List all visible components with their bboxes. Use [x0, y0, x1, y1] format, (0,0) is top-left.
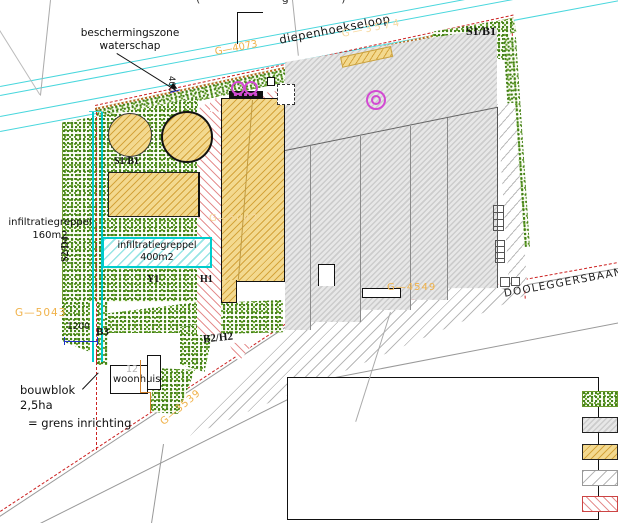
bouwblok-label: bouwblok 2,5ha = grens inrichting: [20, 383, 131, 431]
dim-1200-label: 1200: [67, 322, 90, 332]
dim-1200-tick-left: [64, 337, 65, 345]
small-white-square-symbol: [267, 77, 275, 86]
legend-swatch-bestaande-verharding: [582, 470, 618, 486]
legend-box: Erfbeplanting bestaande bebouwing nieuwe…: [287, 377, 599, 520]
planting-patch-bottom-center: [215, 300, 283, 334]
magenta-circle-1: [231, 81, 245, 95]
new-building-silo-2: [161, 111, 213, 163]
parcel-code-g5042: G—5042: [209, 213, 258, 224]
new-building-left-rect: [108, 172, 200, 217]
dim-1200-tick-right: [97, 337, 98, 345]
infiltration-box-label-1: infiltratiegreppel: [104, 240, 210, 252]
door-box-symbol: [318, 264, 335, 286]
zone-code-s1b1-top: S1/B1: [466, 24, 496, 39]
infiltration-box-400: infiltratiegreppel 400m2: [102, 237, 212, 268]
zone-code-b3: B3: [96, 326, 109, 338]
dashed-square-symbol: [277, 84, 295, 105]
stream-leader-line: [292, 0, 299, 56]
road-fork-line: [151, 444, 164, 523]
legend-swatch-nieuwe-verharding: [582, 496, 618, 512]
top-bracket-vertical: [237, 12, 238, 44]
magenta-target-inner: [371, 95, 381, 105]
infiltration-left-label-line2: 160m2: [2, 229, 98, 242]
road-square-symbol-1: [500, 277, 510, 287]
bouwblok-label-line1: bouwblok: [20, 383, 131, 398]
new-building-main-hall: [221, 98, 285, 282]
parcel-code-g5043: G—5043: [15, 307, 66, 319]
infiltration-left-label: infiltratiegreppel 160m2: [2, 216, 98, 242]
new-building-main-hall-notch: [221, 280, 237, 303]
site-plan: ( ˙ ˙ g ˙ ) infil: [0, 0, 618, 523]
ladder-symbol-2: [495, 240, 505, 263]
parcel-line-topleft: [40, 0, 51, 96]
trench-top-cap: [89, 111, 102, 112]
ladder-symbol-1: [493, 205, 504, 231]
parcel-orange-line-1: [140, 360, 141, 392]
top-bracket-horizontal: [237, 12, 263, 13]
building-division-2: [360, 136, 361, 322]
infiltration-left-label-line1: infiltratiegreppel: [2, 216, 98, 229]
magenta-circle-2: [244, 81, 258, 95]
infiltration-box-label-2: 400m2: [104, 252, 210, 263]
parcel-code-g4073: G—4073: [214, 39, 259, 58]
legend-swatch-erfbeplanting: [582, 391, 618, 407]
top-clipped-text: ( ˙ ˙ g ˙ ): [196, 0, 356, 5]
legend-swatch-bestaande-bebouwing: [582, 417, 618, 433]
protection-zone-label-line2: waterschap: [76, 40, 184, 53]
parcel-code-g4549: G—4549: [387, 282, 436, 293]
zone-code-s1b1-left: S1/B1: [114, 156, 139, 167]
new-building-silo-1: [108, 113, 152, 157]
magenta-target-symbol: [366, 90, 386, 110]
building-division-4: [447, 118, 448, 300]
zone-code-y1: Y1: [147, 274, 159, 285]
protection-zone-label-line1: beschermingszone: [76, 27, 184, 40]
legend-swatch-nieuwe-bebouwing: [582, 444, 618, 460]
parcel-orange-line-2: [140, 392, 150, 393]
protection-zone-label: beschermingszone waterschap: [76, 27, 184, 53]
zone-code-h1: H1: [200, 274, 213, 285]
building-division-1: [310, 146, 311, 330]
parcel-orange-line-3: [150, 392, 151, 412]
dim-1200-line: [64, 341, 98, 342]
bouwblok-label-line2: 2,5ha: [20, 398, 131, 413]
bouwblok-label-line3: = grens inrichting: [28, 416, 131, 431]
